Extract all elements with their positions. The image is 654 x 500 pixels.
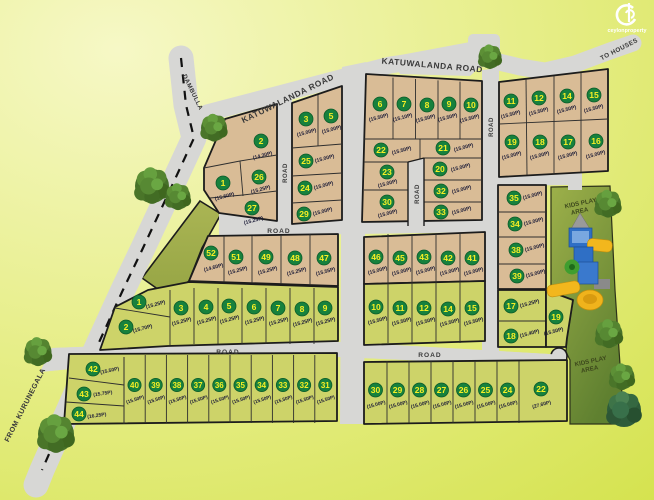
svg-text:30: 30 bbox=[382, 197, 392, 207]
svg-text:ROAD: ROAD bbox=[216, 349, 239, 356]
svg-text:42: 42 bbox=[88, 364, 98, 374]
svg-text:48: 48 bbox=[290, 253, 300, 263]
svg-text:2: 2 bbox=[259, 136, 264, 146]
svg-text:19: 19 bbox=[507, 137, 517, 147]
svg-text:37: 37 bbox=[194, 381, 203, 390]
svg-text:ceylonproperty: ceylonproperty bbox=[608, 28, 647, 34]
svg-text:34: 34 bbox=[257, 381, 266, 390]
svg-text:7: 7 bbox=[276, 303, 281, 313]
svg-text:12: 12 bbox=[419, 303, 429, 313]
svg-text:8: 8 bbox=[425, 100, 430, 110]
svg-text:49: 49 bbox=[261, 252, 271, 262]
svg-text:26: 26 bbox=[459, 385, 469, 395]
svg-text:25: 25 bbox=[481, 385, 491, 395]
svg-text:43: 43 bbox=[79, 389, 89, 399]
svg-text:24: 24 bbox=[503, 385, 513, 395]
svg-text:46: 46 bbox=[371, 252, 381, 262]
svg-text:10: 10 bbox=[371, 302, 381, 312]
svg-text:11: 11 bbox=[395, 303, 404, 313]
svg-text:1: 1 bbox=[137, 297, 142, 307]
svg-text:24: 24 bbox=[300, 183, 310, 193]
svg-text:27: 27 bbox=[247, 203, 257, 213]
svg-text:4: 4 bbox=[204, 302, 209, 312]
svg-text:47: 47 bbox=[319, 253, 329, 263]
svg-text:12: 12 bbox=[534, 93, 544, 103]
svg-text:33: 33 bbox=[278, 381, 287, 390]
svg-text:43: 43 bbox=[419, 252, 429, 262]
svg-text:15: 15 bbox=[467, 303, 477, 313]
svg-text:7: 7 bbox=[402, 99, 407, 109]
svg-text:38: 38 bbox=[511, 245, 521, 255]
svg-text:10: 10 bbox=[466, 100, 476, 110]
svg-text:35: 35 bbox=[236, 381, 245, 390]
svg-text:22: 22 bbox=[376, 145, 386, 155]
svg-text:27: 27 bbox=[437, 385, 447, 395]
svg-text:29: 29 bbox=[299, 209, 309, 219]
svg-text:ROAD: ROAD bbox=[267, 228, 290, 235]
svg-text:14: 14 bbox=[562, 91, 572, 101]
svg-text:40: 40 bbox=[130, 381, 139, 390]
svg-text:3: 3 bbox=[179, 303, 184, 313]
svg-text:32: 32 bbox=[436, 186, 446, 196]
svg-text:3: 3 bbox=[304, 114, 309, 124]
svg-text:6: 6 bbox=[378, 99, 383, 109]
svg-text:2: 2 bbox=[124, 322, 129, 332]
svg-text:52: 52 bbox=[206, 248, 216, 258]
svg-text:16: 16 bbox=[591, 136, 601, 146]
svg-text:23: 23 bbox=[382, 167, 392, 177]
svg-text:11: 11 bbox=[506, 96, 515, 106]
svg-text:51: 51 bbox=[231, 252, 241, 262]
svg-text:22: 22 bbox=[536, 384, 546, 394]
svg-text:36: 36 bbox=[215, 381, 224, 390]
svg-text:5: 5 bbox=[227, 301, 232, 311]
svg-text:20: 20 bbox=[435, 164, 445, 174]
svg-text:44: 44 bbox=[74, 409, 84, 419]
svg-text:35: 35 bbox=[509, 193, 519, 203]
svg-text:ROAD: ROAD bbox=[283, 163, 289, 183]
svg-text:ROAD: ROAD bbox=[418, 352, 441, 359]
svg-text:9: 9 bbox=[323, 303, 328, 313]
svg-text:33: 33 bbox=[436, 207, 446, 217]
svg-text:9: 9 bbox=[447, 99, 452, 109]
svg-text:26: 26 bbox=[254, 172, 264, 182]
svg-text:34: 34 bbox=[510, 219, 520, 229]
svg-text:18: 18 bbox=[506, 331, 516, 341]
svg-text:31: 31 bbox=[321, 381, 330, 390]
svg-text:ROAD: ROAD bbox=[489, 117, 495, 137]
svg-text:39: 39 bbox=[512, 271, 522, 281]
svg-text:25: 25 bbox=[301, 156, 311, 166]
svg-text:38: 38 bbox=[172, 381, 181, 390]
svg-text:ROAD: ROAD bbox=[415, 184, 421, 204]
svg-text:18: 18 bbox=[535, 137, 545, 147]
svg-text:39: 39 bbox=[151, 381, 160, 390]
svg-text:41: 41 bbox=[467, 253, 477, 263]
svg-text:30: 30 bbox=[371, 385, 381, 395]
svg-text:17: 17 bbox=[506, 301, 516, 311]
svg-text:14: 14 bbox=[443, 304, 453, 314]
svg-text:42: 42 bbox=[443, 253, 453, 263]
svg-text:6: 6 bbox=[252, 302, 257, 312]
svg-text:45: 45 bbox=[395, 253, 405, 263]
svg-text:5: 5 bbox=[329, 111, 334, 121]
svg-text:19: 19 bbox=[551, 312, 561, 322]
svg-text:28: 28 bbox=[415, 385, 425, 395]
svg-text:8: 8 bbox=[300, 304, 305, 314]
svg-text:32: 32 bbox=[300, 381, 309, 390]
svg-text:17: 17 bbox=[563, 137, 573, 147]
svg-text:15: 15 bbox=[589, 90, 599, 100]
svg-text:21: 21 bbox=[438, 143, 448, 153]
svg-text:1: 1 bbox=[221, 178, 226, 188]
svg-text:29: 29 bbox=[393, 385, 403, 395]
